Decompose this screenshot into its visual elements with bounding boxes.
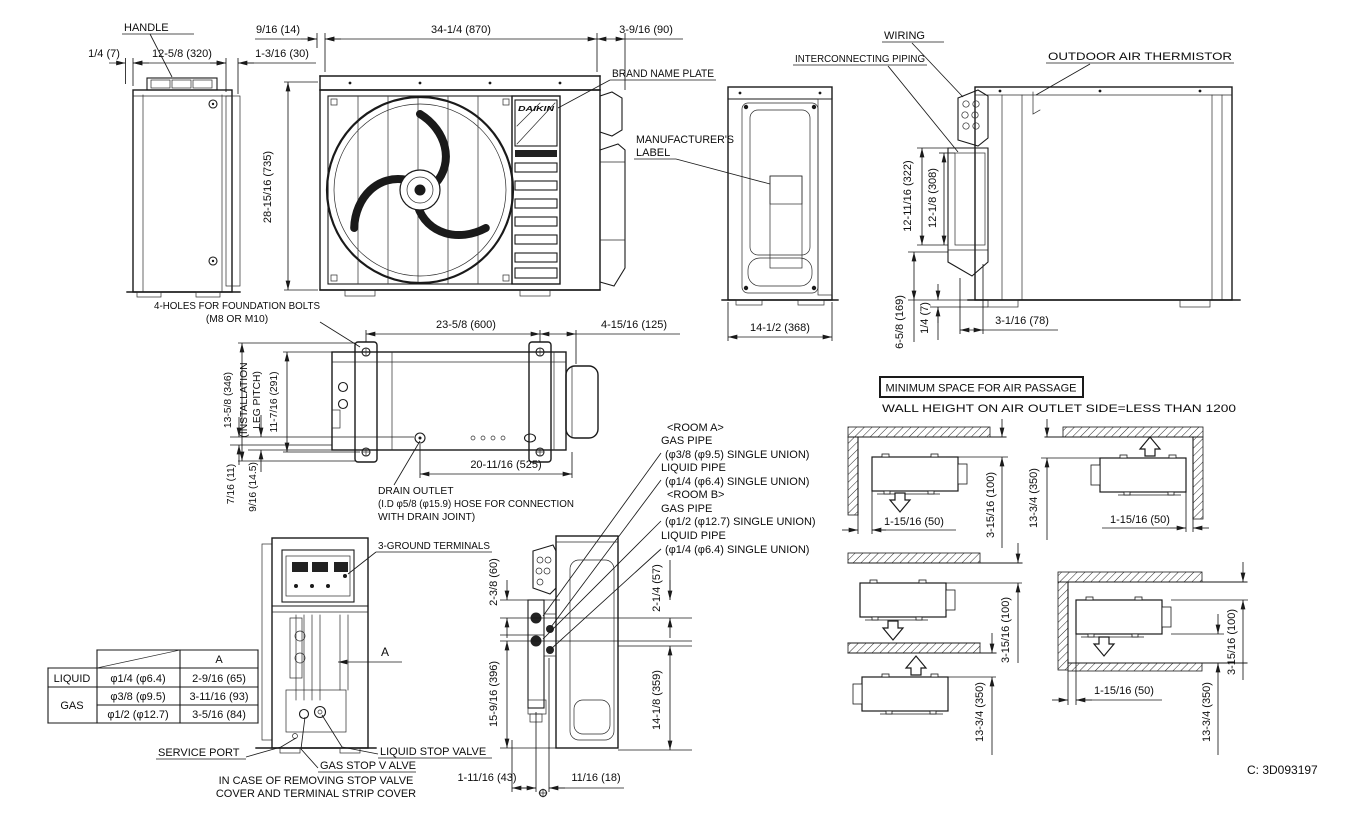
dim-side-width: 14-1/2 (368) [750,322,810,334]
dim-front-side: 3-9/16 (90) [619,24,673,36]
dim-valve-bottom-r: 14-1/8 (359) [651,670,663,730]
dim-piping-h1: 12-11/16 (322) [902,160,914,231]
interconnecting-piping-label: INTERCONNECTING PIPING [795,54,925,65]
callout-room-a-gas: GAS PIPE [661,435,712,447]
wiring-label: WIRING [884,30,925,42]
dim-suction-clearance: 3-15/16 (100) [985,472,997,538]
manufacturers-label-line1: MANUFACTURER'S [636,134,734,146]
table-row-liquid-label: LIQUID [54,673,91,685]
service-port-label: SERVICE PORT [158,747,240,759]
stop-valve-note-1: IN CASE OF REMOVING STOP VALVE [219,775,414,787]
dim-outlet-clearance: 13-3/4 (350) [1028,468,1040,528]
drain-outlet-label-1: DRAIN OUTLET [378,486,454,497]
dim-side-fin: 1-3/16 (30) [255,48,309,60]
foundation-bolts-label-2: (M8 OR M10) [206,314,268,325]
dim-valve-top-r: 2-1/4 (57) [651,564,663,612]
dim-handle-offset: 1/4 (7) [88,48,120,60]
min-space-subtitle: WALL HEIGHT ON AIR OUTLET SIDE=LESS THAN… [882,403,1236,415]
dim-side-clearance: 1-15/16 (50) [1110,514,1170,526]
callout-room-a: <ROOM A> [667,422,724,434]
drawing-page: DAIKIN [0,0,1355,815]
unit-outline [872,454,967,494]
dim-side-clearance: 1-15/16 (50) [1094,685,1154,697]
table-header-a: A [215,654,223,666]
dim-valve-b1: 1-11/16 (43) [457,772,516,784]
unit-outline [860,580,955,620]
dim-valve-top: 2-3/8 (60) [488,558,500,606]
dim-valve-b2: 11/16 (18) [571,772,620,784]
foundation-bolts-label-1: 4-HOLES FOR FOUNDATION BOLTS [154,301,320,312]
liquid-stop-valve-label: LIQUID STOP VALVE [380,746,486,758]
table-row-gas-label: GAS [60,700,83,712]
dim-base-off: 1/4 (7) [919,302,931,334]
dim-front-height: 28-15/16 (735) [262,151,274,223]
table-row-gas1-a: 3-11/16 (93) [189,691,248,703]
callout-room-a-gas-spec: (φ3/8 (φ9.5) SINGLE UNION) [665,449,809,461]
dim-outlet-clearance: 13-3/4 (350) [1201,682,1213,742]
section-a-label: A [381,645,389,659]
callout-room-b: <ROOM B> [667,489,724,501]
dim-side-depth: 12-5/8 (320) [152,48,212,60]
dim-leg-pitch-d: 11-7/16 (291) [269,371,280,432]
panel-slot [515,150,557,157]
table-row-liquid-a: 2-9/16 (65) [192,673,246,685]
ground-terminals-label: 3-GROUND TERMINALS [378,541,490,552]
table-row-gas2-a: 3-5/16 (84) [192,709,246,721]
table-row-gas2-size: φ1/2 (φ12.7) [107,709,168,721]
drain-outlet-label-3: WITH DRAIN JOINT) [378,512,475,523]
dim-base-h: 6-5/8 (169) [894,295,906,349]
dim-side-clearance: 1-15/16 (50) [884,516,944,528]
dim-cap-gap: 9/16 (14) [256,24,300,36]
dim-leg-note-1: (INSTALLATION [239,362,250,437]
table-row-liquid-size: φ1/4 (φ6.4) [110,673,165,685]
gas-stop-valve-label: GAS STOP V ALVE [320,760,416,772]
dim-plan-right: 4-15/16 (125) [601,319,667,331]
callout-room-a-liquid: LIQUID PIPE [661,462,726,474]
brand-name-plate-label: BRAND NAME PLATE [612,68,714,80]
drain-outlet-label-2: (I.D φ5/8 (φ15.9) HOSE FOR CONNECTION [378,499,574,510]
drawing-code: C: 3D093197 [1247,763,1318,777]
technical-drawing: DAIKIN [0,0,1355,815]
dim-drain-off-1: 7/16 (11) [226,464,237,504]
dim-drain-pos: 20-11/16 (525) [470,459,541,471]
dim-piping-h2: 12-1/8 (308) [927,168,939,228]
manufacturers-label-line2: LABEL [636,147,670,159]
unit-outline [1091,455,1186,495]
handle-label: HANDLE [124,22,169,34]
dim-plan-depth: 13-5/8 (346) [223,372,234,428]
stop-valve-note-2: COVER AND TERMINAL STRIP COVER [216,788,416,800]
callout-room-b-liquid: LIQUID PIPE [661,530,726,542]
dim-front-width: 34-1/4 (870) [431,24,491,36]
unit-outline [1076,597,1171,637]
dim-leg-pitch-w: 23-5/8 (600) [436,319,496,331]
outdoor-air-thermistor-label: OUTDOOR AIR THERMISTOR [1048,51,1232,63]
dim-base-w: 3-1/16 (78) [995,315,1049,327]
callout-room-b-liquid-spec: (φ1/4 (φ6.4) SINGLE UNION) [665,544,809,556]
callout-room-a-liquid-spec: (φ1/4 (φ6.4) SINGLE UNION) [665,476,809,488]
min-space-title: MINIMUM SPACE FOR AIR PASSAGE [886,383,1077,395]
brand-logo-text: DAIKIN [518,104,555,113]
callout-room-b-gas-spec: (φ1/2 (φ12.7) SINGLE UNION) [665,516,816,528]
callout-room-b-gas: GAS PIPE [661,503,712,515]
dim-suction-clearance: 3-15/16 (100) [1226,609,1238,675]
dim-drain-off-2: 9/16 (14.5) [248,462,259,512]
table-row-gas1-size: φ3/8 (φ9.5) [110,691,165,703]
dim-valve-bottom: 15-9/16 (396) [488,661,500,727]
dim-suction-clearance: 3-15/16 (100) [1000,597,1012,663]
unit-outline [853,674,948,714]
dim-outlet-clearance: 13-3/4 (350) [974,682,986,742]
